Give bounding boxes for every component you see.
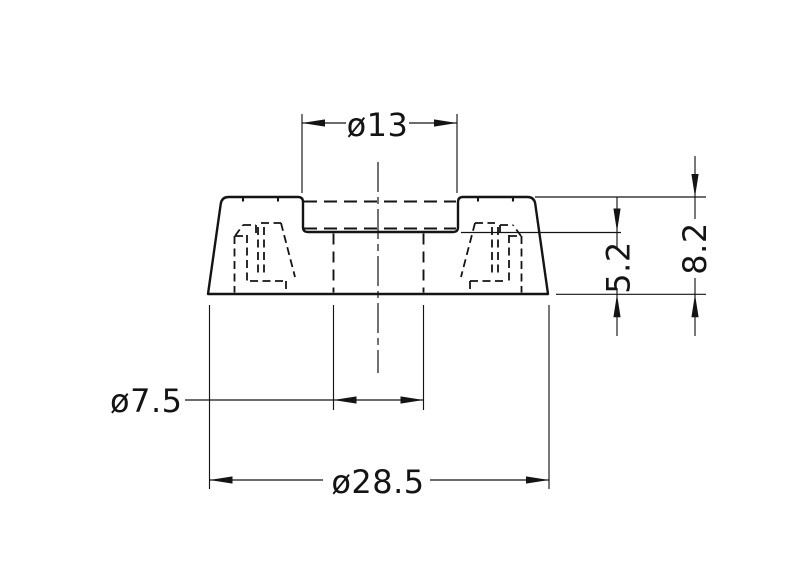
arrowhead-left-icon — [210, 476, 233, 483]
arrowhead-down-icon — [691, 174, 698, 197]
dimension-outer-diameter: ø28.5 — [210, 305, 550, 501]
dimension-label-hole-diameter: ø7.5 — [110, 382, 182, 420]
right-foot-hidden-detail — [461, 223, 522, 293]
arrowhead-up-icon — [691, 294, 698, 317]
arrowhead-right-icon — [401, 396, 424, 403]
dimension-recess-diameter: ø13 — [302, 106, 457, 193]
arrowhead-left-icon — [302, 119, 325, 126]
arrowhead-right-icon — [526, 476, 549, 483]
arrowhead-up-icon — [613, 294, 620, 317]
dimension-hole-diameter: ø7.5 — [110, 305, 424, 420]
extension-lines — [210, 305, 550, 489]
dimension-label-overall-height: 8.2 — [676, 222, 714, 274]
dimension-label-lower-height: 5.2 — [600, 241, 638, 293]
drawing-page: ø13 ø7.5 ø28.5 5.2 — [0, 0, 800, 577]
part-view — [208, 162, 548, 373]
technical-drawing-canvas: ø13 ø7.5 ø28.5 5.2 — [0, 0, 800, 577]
arrowhead-left-icon — [334, 396, 357, 403]
arrowhead-down-icon — [613, 209, 620, 232]
dimension-label-outer-diameter: ø28.5 — [331, 463, 424, 501]
left-foot-hidden-detail — [235, 223, 296, 293]
dimension-label-recess-diameter: ø13 — [347, 106, 409, 144]
recess-hidden-edges — [304, 202, 456, 229]
arrowhead-right-icon — [434, 119, 457, 126]
